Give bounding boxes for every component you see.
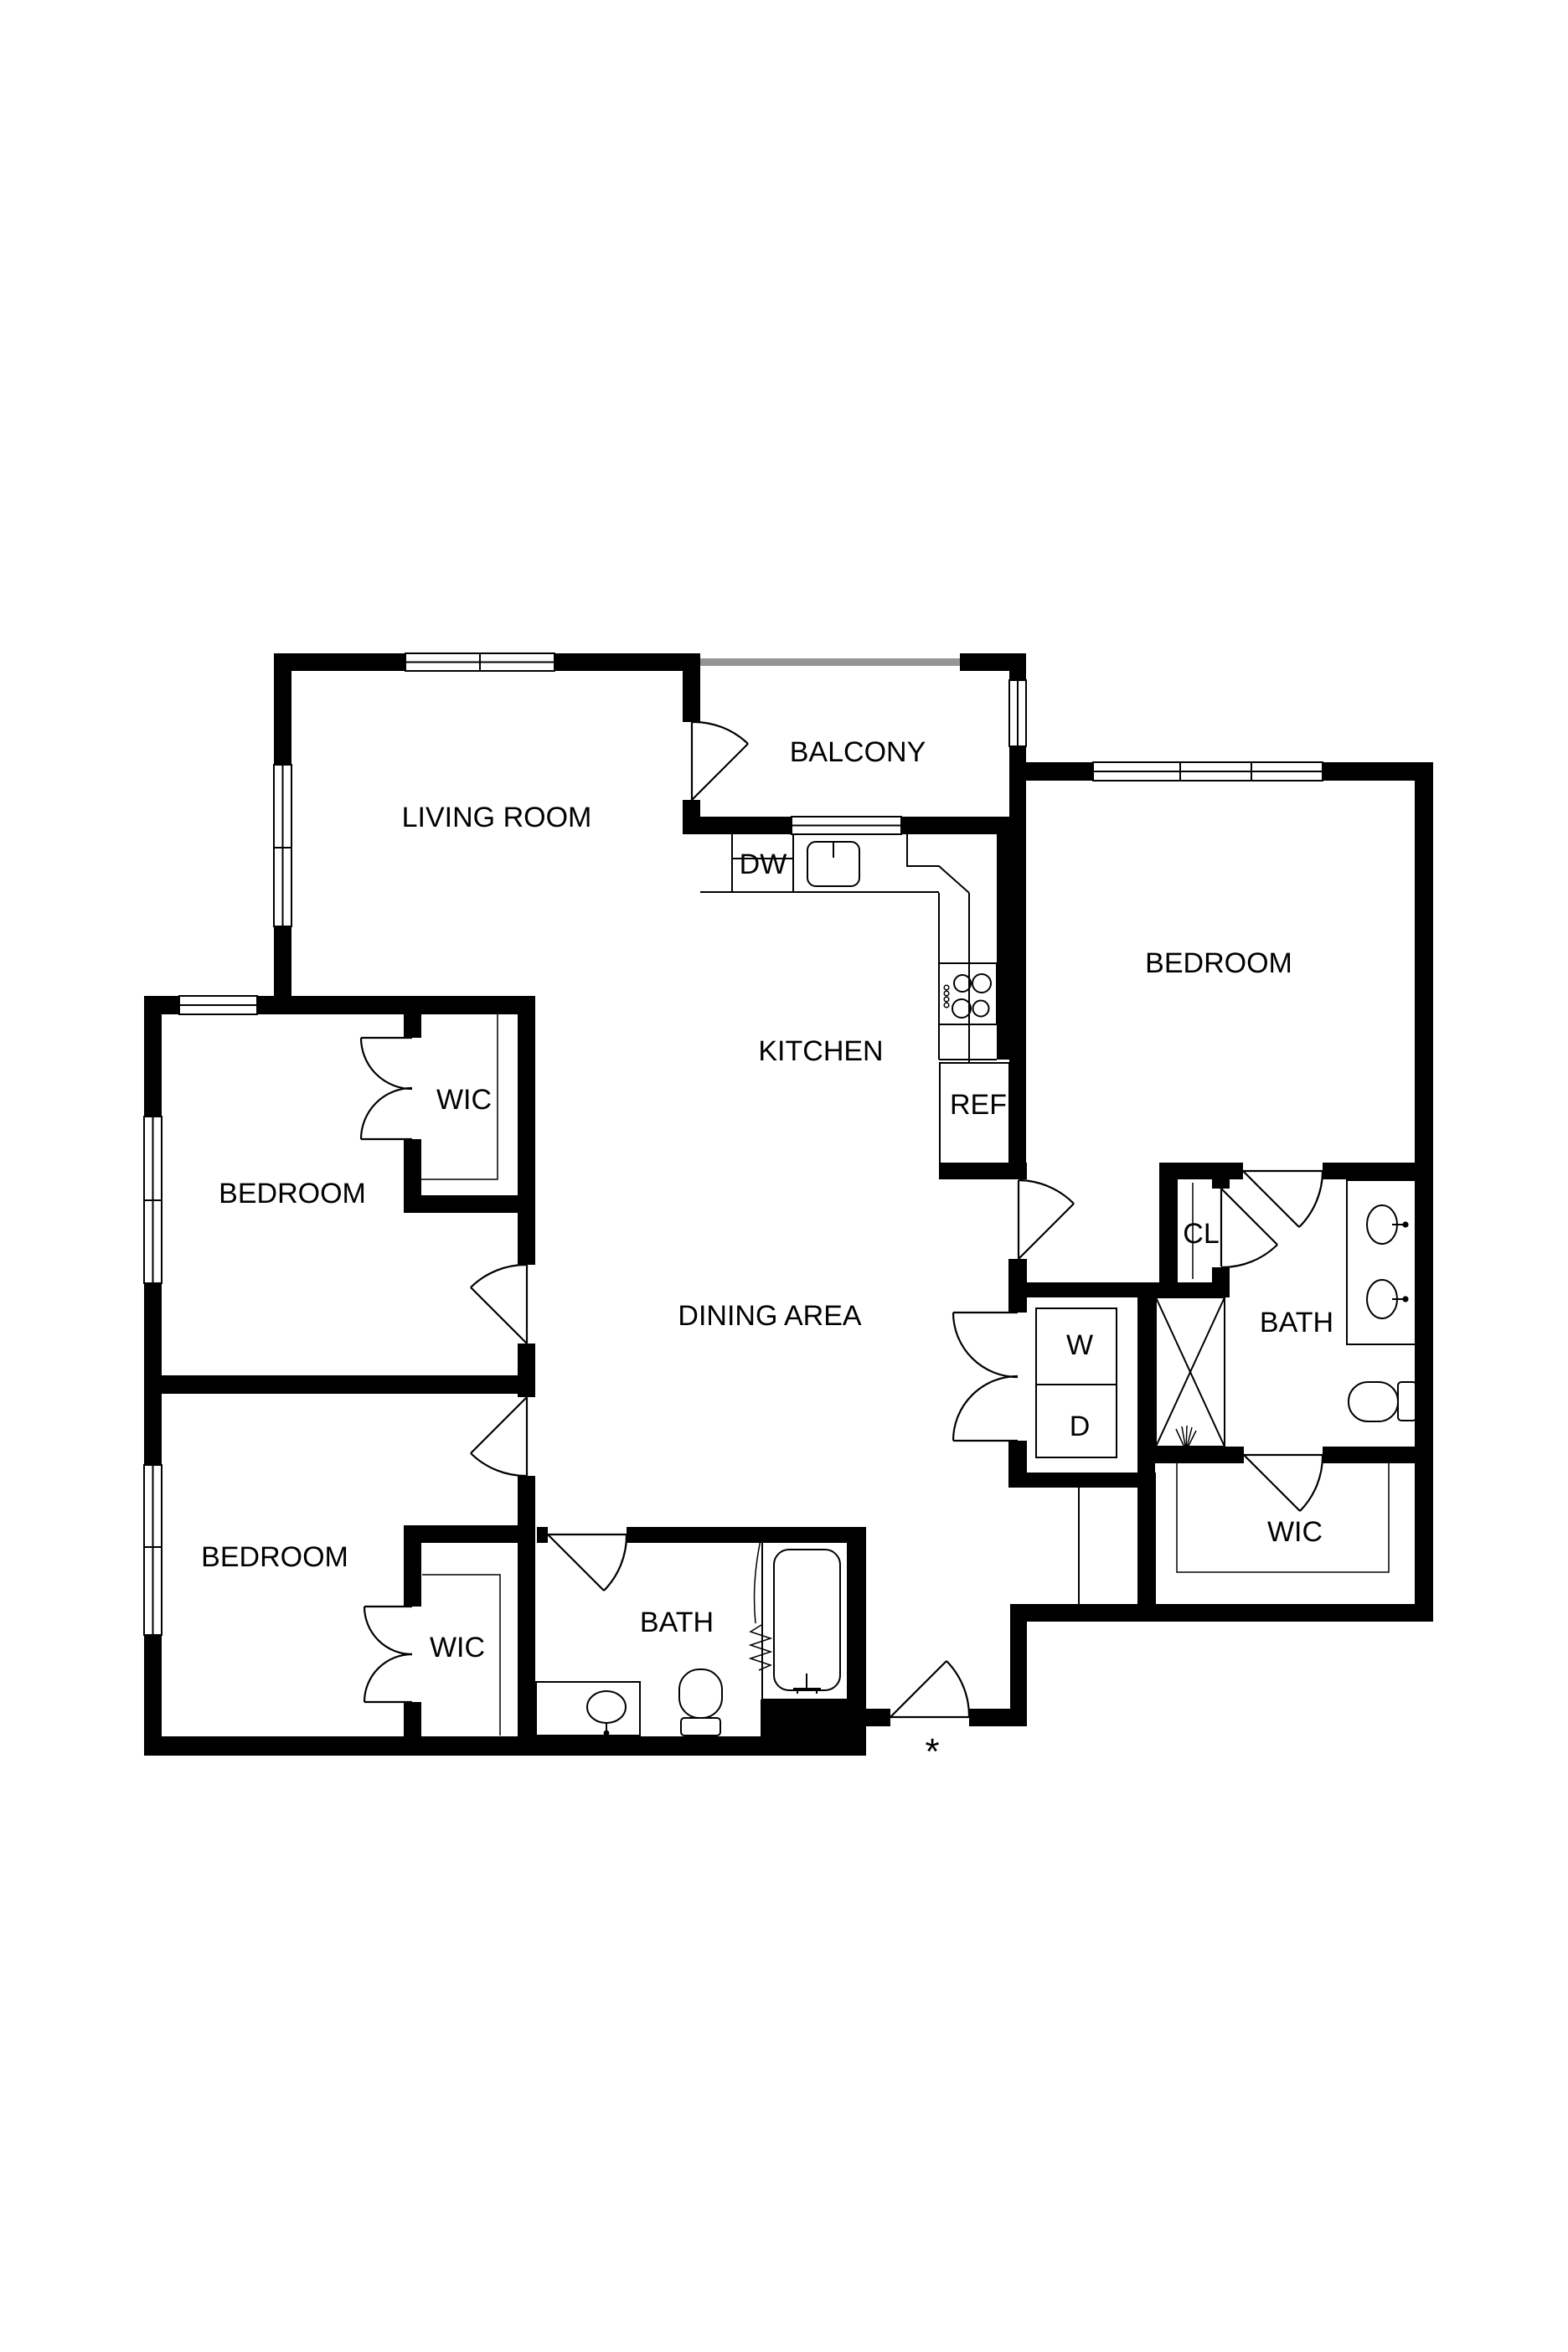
svg-text:W: W [1066,1329,1093,1361]
svg-text:DINING AREA: DINING AREA [678,1300,861,1332]
svg-text:KITCHEN: KITCHEN [758,1035,883,1067]
svg-text:CL: CL [1183,1218,1219,1250]
svg-text:BALCONY: BALCONY [790,736,926,768]
svg-text:*: * [925,1731,939,1772]
svg-text:D: D [1070,1411,1091,1442]
svg-text:BEDROOM: BEDROOM [1145,947,1292,979]
svg-text:BEDROOM: BEDROOM [201,1541,348,1573]
svg-text:LIVING ROOM: LIVING ROOM [402,802,592,833]
svg-text:WIC: WIC [1267,1516,1323,1548]
svg-text:BATH: BATH [640,1607,714,1638]
svg-text:WIC: WIC [430,1632,485,1663]
svg-text:REF: REF [950,1089,1007,1121]
svg-text:WIC: WIC [436,1084,492,1116]
svg-text:BEDROOM: BEDROOM [219,1178,366,1210]
svg-text:BATH: BATH [1260,1307,1333,1338]
svg-text:DW: DW [740,848,787,880]
